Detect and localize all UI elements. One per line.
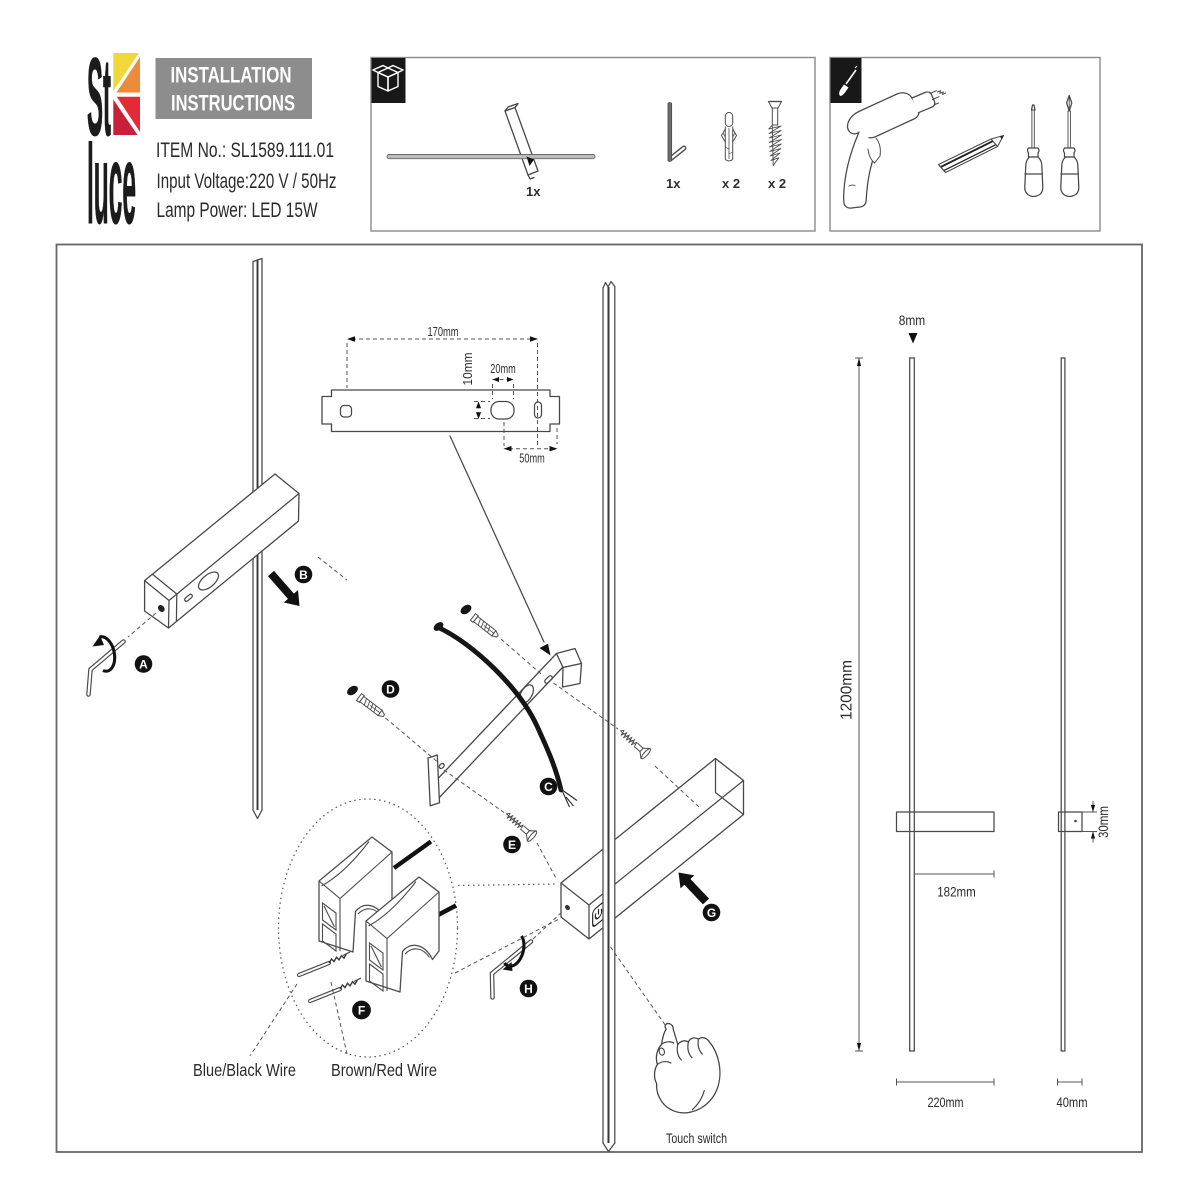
svg-text:50mm: 50mm	[519, 452, 545, 466]
svg-text:F: F	[358, 1004, 365, 1018]
svg-text:220mm: 220mm	[928, 1094, 964, 1110]
svg-text:A: A	[139, 657, 148, 671]
svg-text:x 2: x 2	[722, 176, 740, 191]
svg-text:170mm: 170mm	[428, 325, 459, 339]
svg-text:1x: 1x	[666, 176, 681, 191]
svg-text:1200mm: 1200mm	[839, 660, 856, 720]
svg-text:x 2: x 2	[768, 176, 786, 191]
svg-text:Lamp Power: LED 15W: Lamp Power: LED 15W	[157, 199, 318, 222]
svg-text:Blue/Black Wire: Blue/Black Wire	[193, 1060, 296, 1080]
svg-text:E: E	[508, 838, 516, 852]
svg-text:D: D	[386, 682, 395, 696]
svg-text:Input Voltage:220 V / 50Hz: Input Voltage:220 V / 50Hz	[157, 170, 337, 193]
svg-text:40mm: 40mm	[1057, 1094, 1088, 1110]
svg-text:INSTALLATION: INSTALLATION	[171, 63, 292, 88]
svg-text:C: C	[544, 780, 553, 794]
svg-text:Brown/Red Wire: Brown/Red Wire	[331, 1060, 437, 1080]
svg-text:B: B	[299, 568, 308, 582]
svg-text:1x: 1x	[526, 184, 541, 199]
svg-text:Touch switch: Touch switch	[666, 1130, 727, 1146]
svg-text:ITEM No.: SL1589.111.01: ITEM No.: SL1589.111.01	[156, 139, 334, 162]
svg-text:20mm: 20mm	[490, 362, 516, 376]
svg-text:8mm: 8mm	[899, 312, 926, 328]
svg-text:182mm: 182mm	[937, 884, 976, 900]
svg-text:30mm: 30mm	[1096, 806, 1111, 838]
svg-text:H: H	[524, 982, 533, 996]
svg-text:INSTRUCTIONS: INSTRUCTIONS	[171, 91, 295, 116]
svg-text:10mm: 10mm	[461, 353, 475, 386]
svg-text:luce: luce	[87, 122, 136, 247]
svg-text:G: G	[707, 906, 716, 920]
